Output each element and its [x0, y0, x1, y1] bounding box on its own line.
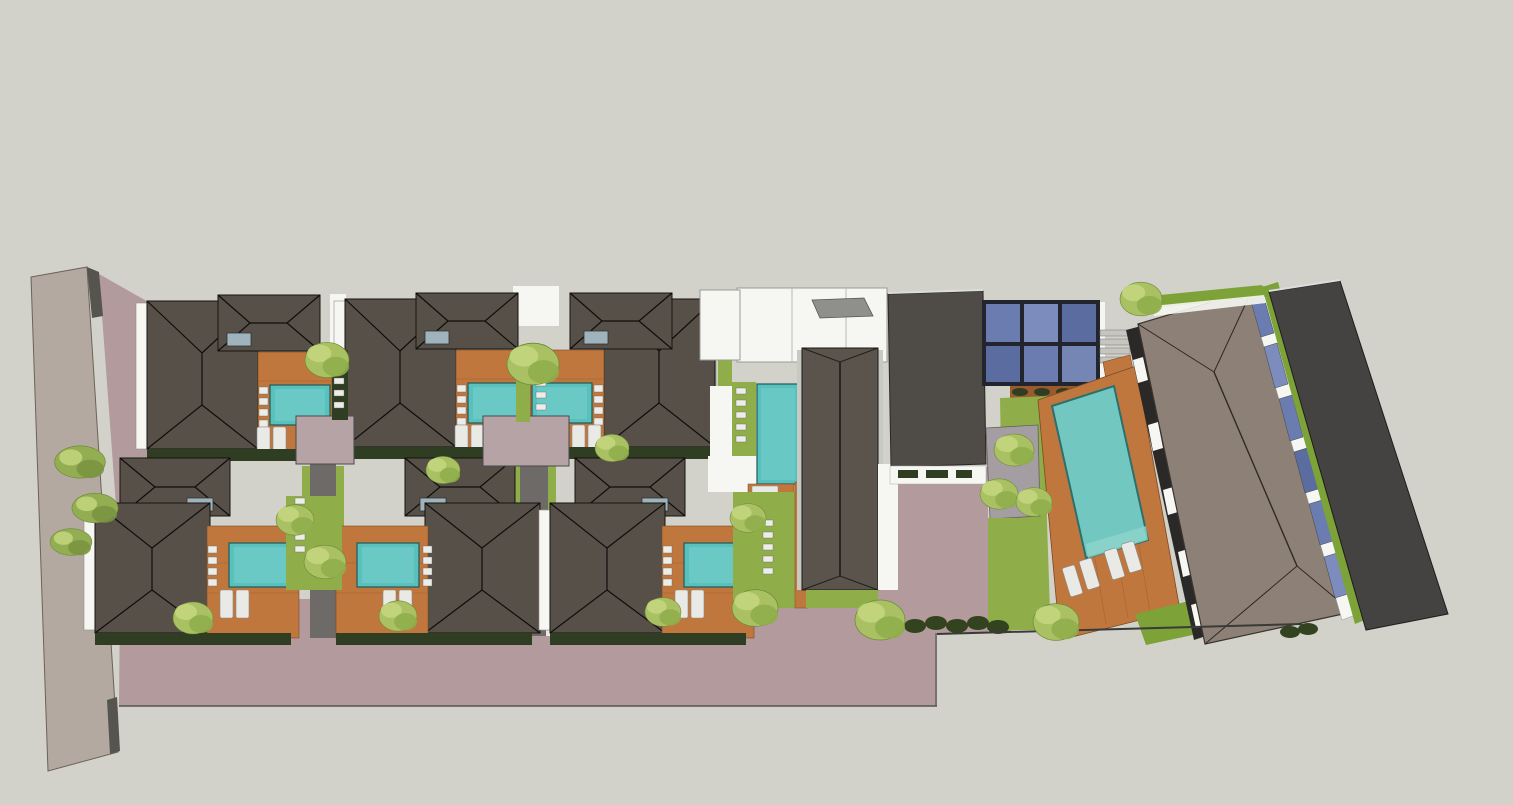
deck-steps — [208, 568, 217, 575]
skylight-panel — [986, 346, 1020, 382]
tree-shadow — [1051, 619, 1079, 640]
walkway-planter — [926, 470, 948, 478]
roof-skylight — [227, 333, 251, 346]
paver-slab — [1100, 339, 1130, 345]
palm-west-3 — [50, 529, 92, 556]
deck-steps — [663, 557, 672, 564]
tree-plaza-center — [732, 590, 778, 627]
roof-skylight — [425, 331, 449, 344]
deck-steps — [663, 546, 672, 553]
tree-court-b1 — [276, 505, 314, 535]
tree-shadow — [440, 467, 460, 482]
stepping-stone — [536, 404, 546, 410]
paver-slab — [1100, 348, 1130, 354]
stepping-stone — [736, 412, 746, 418]
deck-steps — [457, 418, 466, 425]
palm-highlight — [54, 532, 73, 545]
stepping-stone — [736, 400, 746, 406]
tree-shadow — [394, 613, 417, 630]
entrance-canopy — [812, 298, 873, 318]
tree-shadow — [744, 515, 766, 531]
deck-steps — [208, 579, 217, 586]
tree-deck-south — [1033, 604, 1079, 641]
tree-shadow — [321, 559, 346, 578]
villa-hedge — [550, 633, 746, 645]
tree-shadow — [659, 609, 681, 625]
tree-shadow — [750, 605, 778, 626]
stepping-stone — [763, 544, 773, 550]
viewport-canvas[interactable] — [0, 0, 1513, 805]
tree-shadow — [189, 615, 213, 633]
tree-shadow — [323, 357, 349, 377]
sun-lounger — [691, 590, 704, 618]
tree-shadow — [995, 491, 1018, 508]
skylight-panel — [1062, 346, 1096, 382]
tree-pool-lawn-3 — [1016, 488, 1052, 517]
deck-steps — [423, 557, 432, 564]
tree-shadow — [291, 517, 314, 534]
flat-roof-building — [888, 291, 986, 467]
stepping-stone — [295, 546, 305, 552]
lap-pool-water — [761, 388, 795, 480]
planting-blob — [1034, 388, 1050, 396]
tree-court-b2 — [304, 545, 346, 579]
tree-shadow — [1010, 447, 1034, 465]
stepping-stone — [736, 436, 746, 442]
deck-steps — [663, 579, 672, 586]
deck-steps — [594, 407, 603, 414]
tree-shadow — [1137, 296, 1162, 315]
tree-gable-south — [855, 600, 905, 640]
deck-steps — [457, 396, 466, 403]
walkway-planter — [956, 470, 972, 478]
tree-court-v23 — [507, 343, 559, 385]
tree-villa6-south — [645, 598, 681, 627]
shrub — [925, 616, 947, 630]
skylight-panel — [1024, 304, 1058, 342]
tree-villa5-south — [379, 601, 417, 631]
deck-steps — [423, 579, 432, 586]
villa-hedge — [95, 633, 291, 645]
deck-steps — [663, 568, 672, 575]
stepping-stone — [763, 568, 773, 574]
deck-steps — [594, 418, 603, 425]
villa-wall-left — [84, 510, 95, 630]
lobby-annex — [700, 290, 740, 360]
stepping-stone — [334, 378, 344, 384]
palm-west-2 — [72, 493, 118, 522]
court-west — [296, 416, 354, 464]
deck-steps — [208, 557, 217, 564]
villa-wall-left — [539, 510, 550, 630]
sun-lounger — [236, 590, 249, 618]
deck-steps — [259, 420, 268, 427]
tree-plaza-west — [173, 602, 213, 634]
tree-villa3-south — [595, 434, 629, 461]
villa-pool-water — [362, 547, 414, 583]
paver-slab — [1100, 330, 1130, 336]
shrub — [946, 619, 968, 633]
tree-villa2-south — [426, 456, 460, 483]
tree-northeast — [1120, 282, 1162, 316]
stepping-stone — [334, 390, 344, 396]
tree-shadow — [875, 616, 905, 639]
stepping-stone — [763, 556, 773, 562]
palm-highlight — [59, 449, 82, 465]
villa-pool-water — [537, 387, 587, 419]
tree-shadow — [609, 445, 629, 460]
deck-steps — [423, 546, 432, 553]
deck-steps — [259, 398, 268, 405]
stepping-stone — [736, 424, 746, 430]
palm-shadow — [77, 460, 105, 478]
deck-steps — [423, 568, 432, 575]
tree-shadow — [528, 360, 559, 383]
stepping-stone — [736, 388, 746, 394]
deck-steps — [208, 546, 217, 553]
deck-steps — [594, 396, 603, 403]
walkway-planter — [898, 470, 918, 478]
patio-lawn — [988, 518, 1040, 630]
deck-steps — [259, 387, 268, 394]
deck-steps — [457, 407, 466, 414]
palm-highlight — [76, 496, 97, 511]
model-viewport — [0, 0, 1513, 805]
palm-shadow — [92, 506, 117, 523]
tree-lap-south — [730, 504, 766, 533]
court-east — [483, 416, 569, 466]
skylight-panel — [1062, 304, 1096, 342]
tree-pool-lawn-2 — [980, 479, 1018, 509]
deck-steps — [594, 385, 603, 392]
deck-steps — [457, 385, 466, 392]
villa-wall-left — [136, 303, 147, 449]
palm-shadow — [68, 540, 91, 555]
roof-skylight — [584, 331, 608, 344]
palm-west-1 — [55, 446, 106, 478]
stepping-stone — [295, 498, 305, 504]
tree-court-v12 — [305, 342, 349, 377]
skylight-panel — [1024, 346, 1058, 382]
deck-steps — [259, 409, 268, 416]
tree-shadow — [1030, 499, 1052, 515]
skylight-panel — [986, 304, 1020, 342]
tree-pool-lawn-1 — [994, 434, 1034, 466]
villa-pool-water — [473, 387, 523, 419]
villa-hedge — [336, 633, 532, 645]
stepping-stone — [536, 392, 546, 398]
shrub — [967, 616, 989, 630]
shrub — [904, 619, 926, 633]
villa-pool-water — [234, 547, 286, 583]
sun-lounger — [220, 590, 233, 618]
stepping-stone — [763, 532, 773, 538]
shrub — [1280, 626, 1300, 638]
walkway-gap — [513, 286, 559, 326]
planting-blob — [1012, 388, 1028, 396]
stepping-stone — [334, 402, 344, 408]
